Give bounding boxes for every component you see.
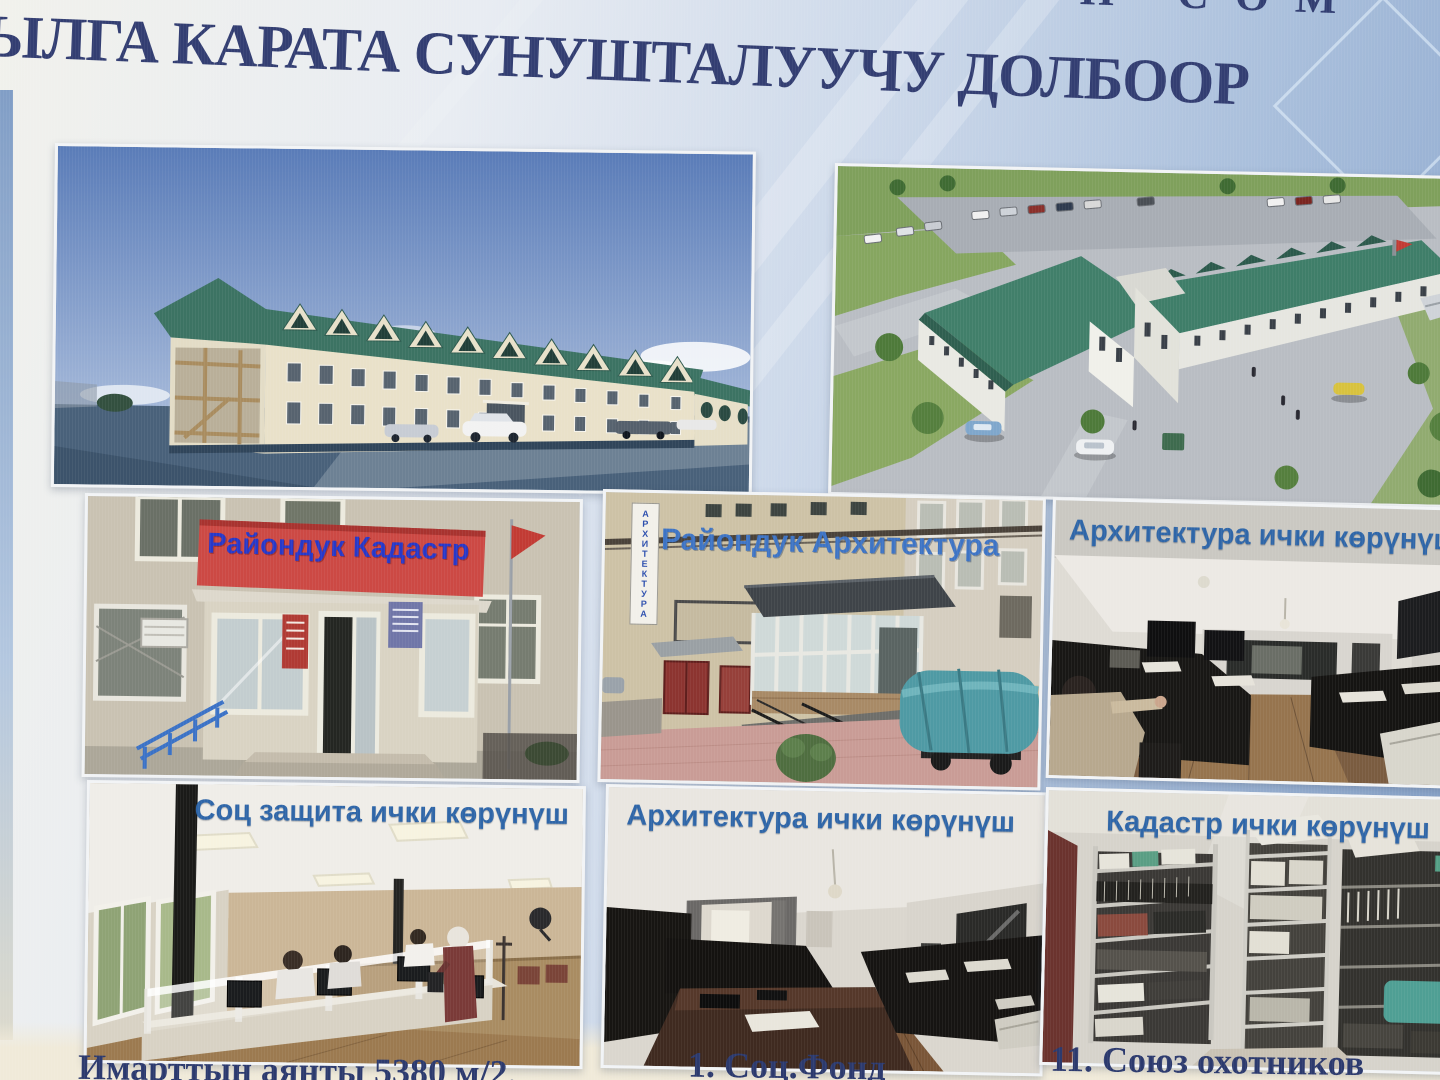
clipped-top-line: Н СОМ bbox=[1079, 0, 1363, 25]
arch-building-photo: АРХИТЕКТУРА Райондук Архитектура bbox=[597, 489, 1046, 790]
shelf-unit-left bbox=[1091, 841, 1216, 1046]
poster-title: ЫЛГА КАРАТА СУНУШТАЛУУЧУ ДОЛБООР bbox=[0, 2, 1250, 121]
soc-interior-caption: Соц защита ички көрүнүш bbox=[194, 794, 569, 832]
shelf-unit-center bbox=[1241, 813, 1337, 1055]
shelf-unit-right bbox=[1338, 825, 1440, 1058]
arch-interior-photo: Архитектура ички көрүнүш bbox=[1046, 497, 1440, 789]
ac-unit bbox=[141, 619, 187, 648]
soc-interior-photo: Соц защита ички көрүнүш bbox=[84, 780, 586, 1069]
building-render-front-image bbox=[51, 143, 756, 496]
curb bbox=[601, 697, 662, 738]
kadastr-building-photo: Райондук Кадастр bbox=[82, 493, 583, 783]
vertical-arch-sign: АРХИТЕКТУРА bbox=[629, 503, 659, 626]
red-doors bbox=[664, 661, 751, 715]
car-fragment bbox=[602, 677, 624, 693]
kadastr-interior-photo: Кадастр ички көрүнүш bbox=[1039, 787, 1440, 1076]
arch-building-caption: Райондук Архитектура bbox=[661, 523, 1000, 563]
building-render-aerial-image bbox=[828, 163, 1440, 508]
soc-fund-label: 1. Соц.Фонд bbox=[688, 1044, 886, 1080]
building-area-label: Имарттын аянты 5380 м/2. bbox=[78, 1046, 517, 1080]
ceiling bbox=[1053, 555, 1440, 641]
poster-photo: Н СОМ ЫЛГА КАРАТА СУНУШТАЛУУЧУ ДОЛБООР bbox=[0, 0, 1440, 1080]
red-cabinet bbox=[1042, 830, 1078, 1063]
screen-edge-strip bbox=[0, 90, 13, 1040]
pillar-2 bbox=[393, 879, 404, 964]
hunters-union-label: 11. Союз охотников bbox=[1050, 1038, 1365, 1080]
arch-interior-2-photo: Архитектура ички көрүнүш bbox=[601, 784, 1048, 1076]
